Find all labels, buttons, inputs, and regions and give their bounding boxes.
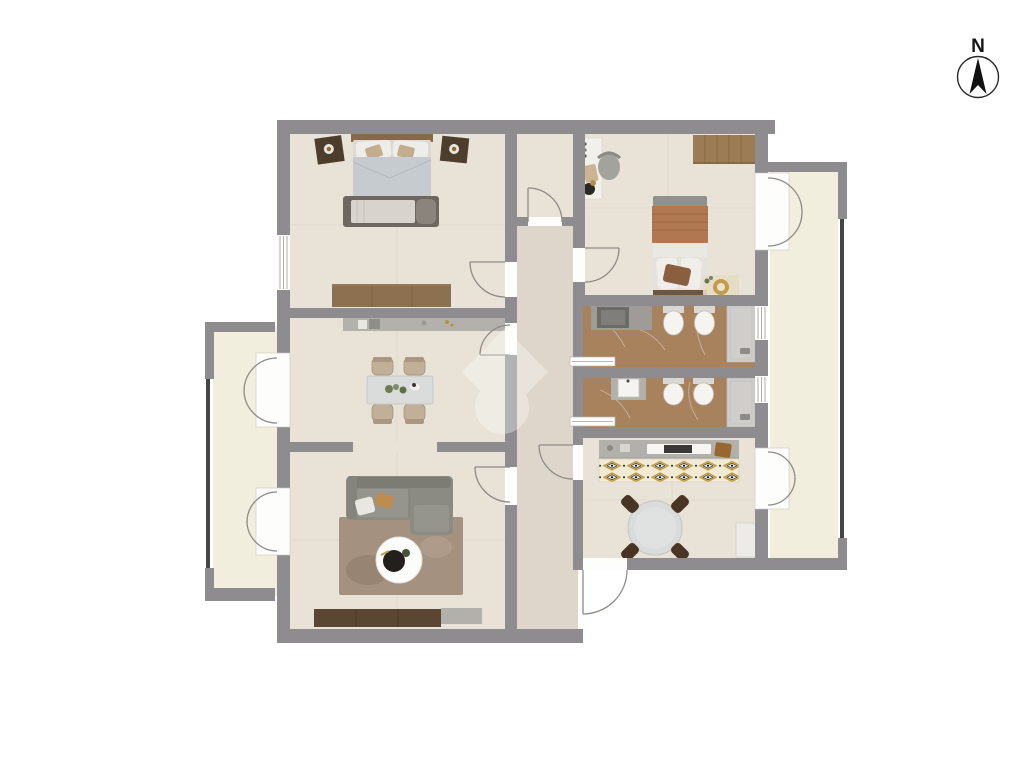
- wall: [510, 217, 528, 226]
- hob: [664, 445, 692, 453]
- dresser: [332, 284, 451, 307]
- north-arrow-icon: [970, 58, 987, 94]
- floor-plan: N: [0, 0, 1024, 768]
- wall: [437, 442, 517, 452]
- foot-bench: [343, 196, 439, 227]
- wall: [838, 162, 847, 219]
- compass: N: [958, 36, 999, 98]
- wall: [573, 133, 585, 248]
- balcony-railing: [840, 219, 844, 538]
- vanity: [591, 304, 652, 330]
- toilet: [663, 305, 684, 335]
- double-bed: [351, 133, 433, 198]
- wall: [573, 427, 768, 438]
- sideboard: [343, 318, 505, 331]
- wall: [838, 538, 847, 570]
- entry-door: [583, 558, 627, 614]
- wall: [290, 308, 517, 318]
- desk-chair: [598, 153, 620, 180]
- shower: [727, 378, 755, 427]
- bidet: [693, 377, 714, 405]
- wall: [766, 558, 847, 570]
- wall: [755, 403, 768, 450]
- drain: [740, 414, 750, 420]
- dining-table: [367, 376, 433, 404]
- chair: [404, 404, 425, 421]
- blanket: [652, 206, 708, 243]
- closet-floor: [510, 128, 578, 223]
- wall: [277, 425, 290, 490]
- foot-bar: [653, 196, 707, 207]
- window: [277, 235, 290, 290]
- wall: [205, 568, 214, 601]
- patterned-rug: [599, 459, 739, 482]
- sliding-door-bathroom-1: [570, 357, 615, 366]
- rug-with-plant: [703, 275, 739, 298]
- counter-with-hob: [599, 440, 739, 458]
- wall: [573, 295, 768, 306]
- sliding-door-bathroom-2: [570, 417, 615, 426]
- wall: [205, 322, 214, 379]
- shower: [727, 304, 755, 362]
- nightstand-right: [440, 136, 469, 164]
- gray-unit: [441, 608, 482, 624]
- wardrobe: [693, 135, 756, 164]
- tv-console: [314, 609, 441, 627]
- window: [755, 306, 768, 340]
- compass-label: N: [971, 36, 985, 57]
- bidet: [694, 305, 715, 335]
- sink: [611, 376, 646, 400]
- wall: [277, 134, 290, 235]
- wall: [505, 297, 517, 323]
- wall: [205, 322, 275, 332]
- toilet: [663, 377, 684, 405]
- wall: [277, 629, 583, 643]
- wall: [205, 588, 275, 601]
- drain: [740, 348, 750, 354]
- cutting-board: [714, 442, 732, 458]
- window: [755, 376, 768, 403]
- nightstand-left: [314, 135, 344, 165]
- french-door-kitchen: [755, 448, 795, 509]
- wall: [766, 162, 847, 172]
- chair: [372, 404, 393, 421]
- coffee-table: [376, 537, 422, 583]
- wall: [290, 442, 353, 452]
- single-bed: [652, 196, 708, 297]
- wall: [505, 505, 517, 629]
- balcony-railing: [206, 379, 210, 568]
- wall: [573, 480, 583, 558]
- wall: [505, 133, 517, 262]
- wall: [277, 120, 775, 134]
- cabinet: [736, 523, 758, 557]
- wall: [573, 367, 768, 378]
- wall: [277, 290, 290, 355]
